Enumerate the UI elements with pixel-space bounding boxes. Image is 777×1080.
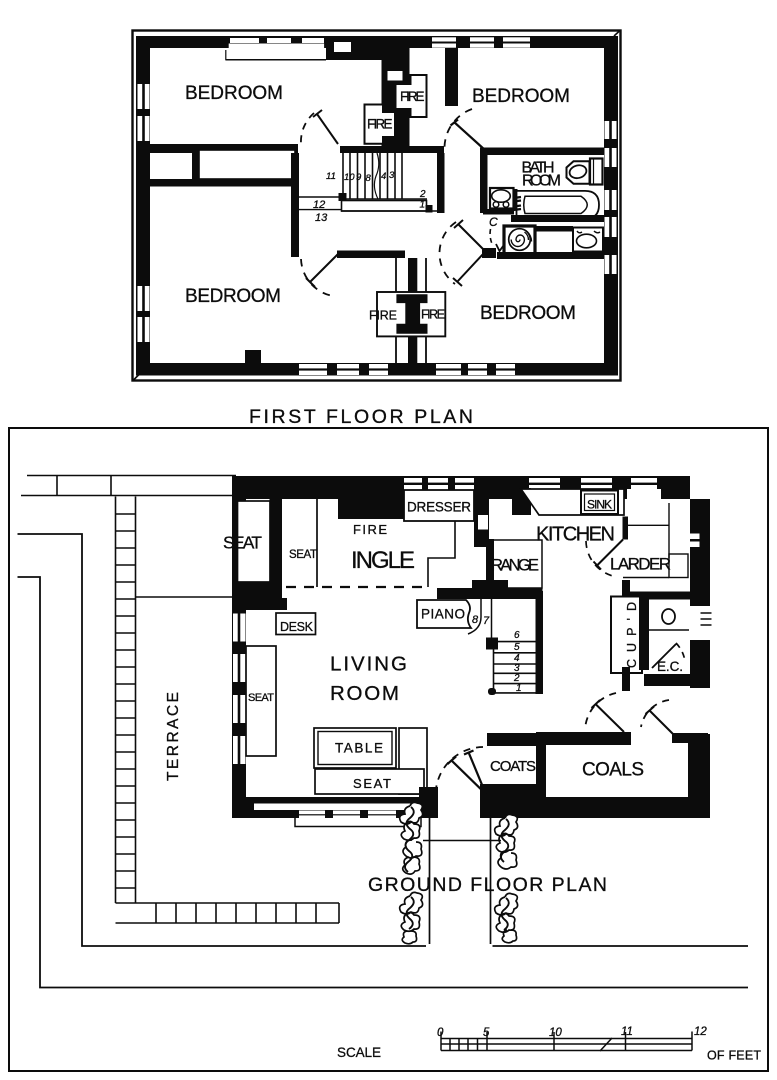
svg-text:TERRACE: TERRACE [165,691,182,781]
svg-text:9: 9 [356,172,362,183]
svg-text:DRESSER: DRESSER [407,500,471,515]
svg-text:FIRE: FIRE [367,117,393,132]
svg-text:7: 7 [483,615,490,627]
svg-text:E.C.: E.C. [657,659,683,674]
svg-text:DESK: DESK [280,620,314,634]
svg-text:2: 2 [419,189,426,200]
svg-text:BEDROOM: BEDROOM [480,303,577,324]
svg-text:INGLE: INGLE [351,547,415,574]
svg-text:FIRE: FIRE [369,308,397,322]
svg-text:OF FEET: OF FEET [707,1049,761,1063]
svg-text:GROUND FLOOR PLAN: GROUND FLOOR PLAN [368,874,608,896]
svg-text:LARDER: LARDER [610,555,671,574]
svg-text:PIANO: PIANO [421,607,465,622]
svg-text:10: 10 [549,1027,562,1039]
svg-text:FIRST FLOOR PLAN: FIRST FLOOR PLAN [249,406,474,428]
svg-text:KITCHEN: KITCHEN [536,524,616,546]
svg-text:C: C [489,215,498,229]
svg-text:8: 8 [472,614,479,626]
svg-text:FIRE: FIRE [421,308,445,322]
svg-text:1: 1 [420,200,426,211]
svg-text:0: 0 [437,1027,444,1039]
svg-text:SCALE: SCALE [337,1045,381,1060]
svg-text:COATS: COATS [490,758,536,775]
svg-text:BEDROOM: BEDROOM [185,83,284,104]
svg-text:TABLE: TABLE [335,741,383,756]
svg-text:12: 12 [694,1026,707,1038]
svg-text:RANGE: RANGE [491,557,539,575]
svg-text:SEAT: SEAT [223,533,262,553]
svg-text:3: 3 [389,170,395,181]
svg-text:BEDROOM: BEDROOM [472,86,571,107]
svg-text:1: 1 [516,683,522,694]
svg-text:5: 5 [514,642,520,653]
svg-text:13: 13 [315,212,328,224]
svg-text:BEDROOM: BEDROOM [185,286,282,307]
svg-text:11: 11 [621,1026,633,1038]
svg-text:ROOM: ROOM [522,173,562,190]
svg-text:FIRE: FIRE [353,522,389,537]
svg-text:FIRE: FIRE [400,89,425,104]
svg-text:COALS: COALS [582,760,644,781]
svg-text:4: 4 [381,171,386,182]
svg-text:10: 10 [344,172,355,183]
svg-text:SEAT: SEAT [289,549,317,561]
svg-text:SINK: SINK [587,498,612,512]
svg-text:11: 11 [326,171,336,182]
svg-text:12: 12 [313,199,325,211]
svg-text:5: 5 [483,1027,490,1039]
svg-text:6: 6 [514,630,520,641]
svg-text:8: 8 [366,173,372,184]
svg-text:LIVING: LIVING [330,653,408,676]
svg-text:SEAT: SEAT [248,692,274,704]
svg-text:ROOM: ROOM [330,682,400,705]
